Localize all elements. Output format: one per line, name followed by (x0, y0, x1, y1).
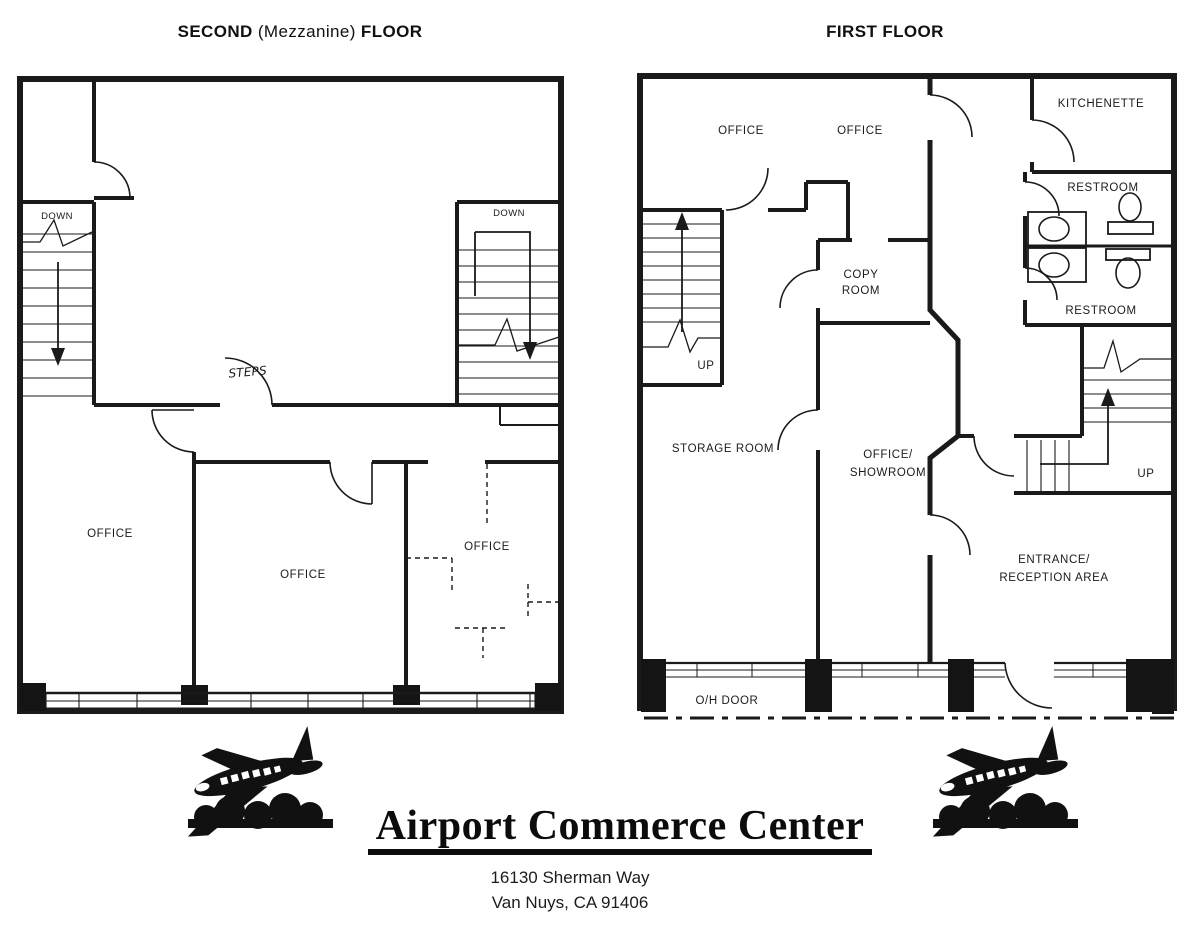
second-floor-walls (20, 81, 559, 687)
second-floor-outer-wall (20, 79, 561, 711)
room-label-kitchenette: KITCHENETTE (1058, 98, 1144, 110)
stairs-label: UP (1137, 468, 1154, 480)
column (948, 659, 974, 712)
up-arrow-icon (1101, 388, 1115, 406)
room-label-oh-door: O/H DOOR (696, 695, 759, 707)
second-floor-doors (94, 162, 372, 504)
second-floor-window-band (20, 683, 561, 711)
room-label-restroom: RESTROOM (1065, 305, 1136, 317)
column (393, 685, 420, 705)
toilet-icon (1119, 193, 1141, 221)
title-part: SECOND (178, 22, 253, 41)
second-floor-stairs-right (459, 232, 559, 394)
corner-column (535, 683, 561, 711)
toilet-icon (1116, 258, 1140, 288)
floor-plan-sheet: DOWN DOWN STEPS OFFICE OFFICE OFFICE (0, 0, 1204, 933)
title-part: FLOOR (361, 22, 423, 41)
property-branding: Airport Commerce Center (280, 804, 960, 855)
property-address: 16130 Sherman Way Van Nuys, CA 91406 (400, 866, 740, 915)
column (181, 685, 208, 705)
second-floor-minor-walls (500, 405, 559, 425)
sink-icon (1039, 217, 1069, 241)
sink-icon (1039, 253, 1069, 277)
room-label-showroom: OFFICE/ (863, 449, 913, 461)
column (641, 659, 666, 712)
address-line: 16130 Sherman Way (400, 866, 740, 891)
column (805, 659, 832, 712)
room-label-office: OFFICE (87, 528, 133, 540)
stairs-label: UP (697, 360, 714, 372)
toilet-base-icon (1108, 222, 1153, 234)
corner-column (1152, 659, 1174, 714)
stair-break-line (642, 320, 720, 352)
property-name: Airport Commerce Center (368, 804, 873, 855)
restroom-fixtures (1028, 193, 1153, 288)
second-floor-stairs-left (22, 220, 92, 396)
floor-plan-drawing: DOWN DOWN STEPS OFFICE OFFICE OFFICE (0, 0, 1204, 933)
first-floor-window-band (641, 659, 1174, 718)
down-arrow-icon (51, 348, 65, 366)
address-line: Van Nuys, CA 91406 (400, 891, 740, 916)
stair-break-line (22, 220, 92, 246)
dashed-partitions (406, 464, 559, 658)
stair-break-line (1084, 341, 1172, 372)
room-label-entrance: RECEPTION AREA (999, 572, 1108, 584)
room-label-entrance: ENTRANCE/ (1018, 554, 1090, 566)
second-floor-plan: DOWN DOWN STEPS OFFICE OFFICE OFFICE (20, 79, 561, 711)
stairs-label: DOWN (493, 208, 525, 219)
up-arrow-icon (675, 212, 689, 230)
room-label-office: OFFICE (837, 125, 883, 137)
steps-label: STEPS (228, 363, 268, 380)
room-label-office: OFFICE (464, 541, 510, 553)
first-floor-stairs-left (642, 212, 720, 352)
column (1126, 659, 1152, 712)
room-label-copy-room: COPY (844, 269, 879, 281)
room-label-restroom: RESTROOM (1067, 182, 1138, 194)
room-label-copy-room: ROOM (842, 285, 880, 297)
first-floor-plan: OFFICE OFFICE KITCHENETTE RESTROOM RESTR… (640, 76, 1174, 718)
title-part: (Mezzanine) (258, 22, 356, 41)
first-floor-title: FIRST FLOOR (735, 22, 1035, 42)
room-label-office: OFFICE (718, 125, 764, 137)
first-floor-doors (726, 95, 1074, 708)
first-floor-spine-wall (930, 79, 958, 663)
second-floor-title: SECOND (Mezzanine) FLOOR (100, 22, 500, 42)
room-label-showroom: SHOWROOM (850, 467, 926, 479)
room-label-office: OFFICE (280, 569, 326, 581)
corner-column (20, 683, 46, 711)
stairs-label: DOWN (41, 211, 73, 222)
room-label-storage: STORAGE ROOM (672, 443, 774, 455)
